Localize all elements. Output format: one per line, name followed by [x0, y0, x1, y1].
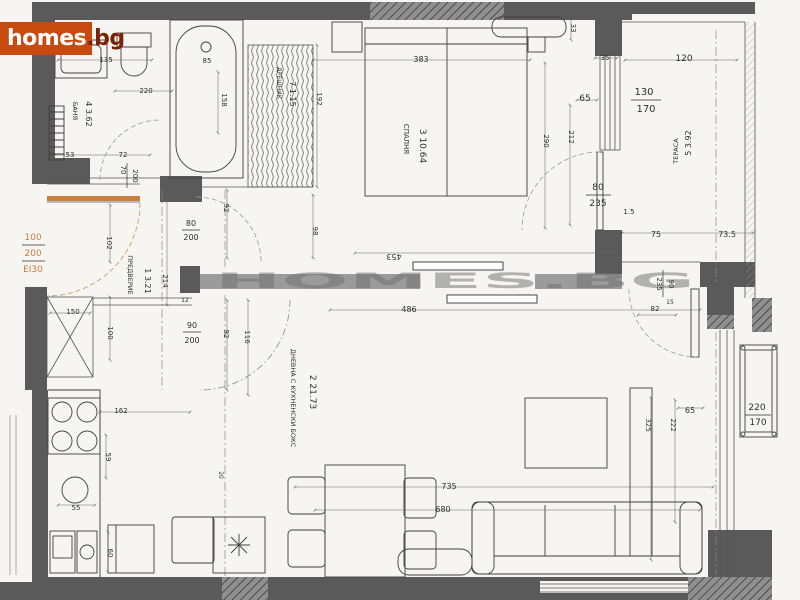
hall-living-door-swing-arc: [200, 300, 290, 390]
wall-left-mid: [25, 287, 47, 390]
room-name-1: ПРЕДВЕРИЕ: [126, 255, 134, 294]
dimension-label: 100: [24, 233, 41, 243]
dining-table: [325, 465, 405, 577]
column-top: [370, 2, 504, 20]
bed: [365, 28, 527, 196]
dimension-label: 80: [592, 183, 604, 193]
armchair: [172, 517, 214, 563]
dimension-label: 486: [401, 305, 416, 314]
wall-kitchen-left: [32, 390, 48, 580]
bath-door-swing-arc: [100, 120, 160, 180]
dimension-label: 220: [139, 87, 152, 95]
dimension-label: 735: [441, 482, 456, 491]
dimension-label: 150: [66, 308, 79, 316]
dimension-label: 59: [104, 453, 112, 462]
dimension-label: 90: [187, 321, 197, 330]
furniture: [48, 17, 777, 577]
dimension-label: 200: [24, 249, 41, 259]
dimension-label: 200: [131, 169, 139, 182]
room-name-3: СПАЛНЯ: [402, 124, 410, 154]
nightstand: [332, 22, 362, 52]
wall-bath-corner: [32, 158, 90, 184]
dining-chair: [288, 477, 325, 514]
dimension-label: 383: [413, 55, 428, 64]
room-name-4: БАНЯ: [71, 102, 79, 120]
dimension-label: 235: [655, 277, 663, 290]
structural-walls: [0, 2, 772, 600]
dimension-label: 98: [311, 227, 319, 236]
room-area-3: 3 10.64: [417, 129, 427, 164]
wall-bottom-left-stub: [0, 582, 32, 600]
dimension-label: 70: [119, 166, 127, 175]
dimension-label: 55: [72, 504, 81, 512]
logo-text-primary: homes: [7, 28, 86, 50]
living-terrace-door-leaf: [691, 289, 699, 357]
light-fixture-box: [213, 517, 265, 573]
dimension-label: 162: [114, 407, 127, 415]
dishwasher: [77, 531, 97, 573]
dimension-label: 135: [99, 56, 112, 64]
dimension-label: 325: [644, 418, 652, 431]
dimension-label: 212: [567, 130, 575, 143]
bathtub: [170, 20, 243, 178]
homes-bg-logo: homes.bg: [0, 22, 92, 55]
stove: [48, 398, 100, 454]
logo-text-suffix: .bg: [86, 28, 124, 50]
room-area-5: 5 3.92: [684, 130, 693, 155]
column-bottom-right: [688, 577, 772, 600]
wall-bottom-right-block: [708, 530, 772, 577]
dimension-label: 65: [685, 406, 695, 415]
dimension-label: 116: [243, 330, 251, 344]
column-right-edge: [752, 298, 772, 332]
sliding-panel-lower: [447, 295, 537, 303]
dimension-label: 82: [651, 305, 660, 313]
dimension-label: 53: [66, 151, 75, 159]
kitchen-counter: [48, 390, 100, 577]
living-terrace-door-arc: [629, 289, 697, 357]
wall-pier-hall: [180, 266, 200, 293]
column-bottom-mid: [222, 577, 268, 600]
window-bottom-opening: [540, 581, 688, 593]
dimension-label: 192: [315, 92, 323, 105]
watermark-text: HOMES.BG: [215, 269, 695, 293]
dimension-label: 200: [184, 336, 199, 345]
dimension-label: 130: [634, 87, 653, 98]
dimension-lines: [50, 18, 753, 572]
room-name-2: ДНЕВНА С КУХНЕНСКИ БОКС: [289, 349, 297, 448]
dimension-label: 20: [217, 471, 224, 479]
dimension-label: ЕI30: [23, 265, 43, 275]
room-area-4: 4 3.62: [84, 101, 93, 126]
dining-chair: [288, 530, 325, 567]
dimension-label: 35: [601, 54, 610, 62]
light-fixture-star: [228, 534, 250, 556]
dimension-label: 92: [222, 330, 230, 339]
dining-chair: [404, 531, 436, 569]
dimension-label: 214: [161, 274, 169, 288]
dimension-label: 12: [181, 297, 189, 304]
column-right-mid: [707, 315, 734, 329]
wall-bedroom-terrace-top: [595, 14, 622, 56]
dimension-label: 65: [579, 94, 590, 104]
dimension-label: 72: [119, 151, 128, 159]
dimension-label: 220: [748, 403, 765, 413]
ottoman: [398, 549, 472, 575]
dimension-label: 235: [589, 199, 606, 209]
room-name-7: ДРЕШНИК: [275, 67, 282, 100]
kitchen-cabinet: [50, 531, 75, 573]
sofa: [472, 502, 702, 574]
bedroom-shelf: [492, 17, 566, 52]
dimension-label: 92: [222, 204, 230, 213]
terrace-railing-hatch: [746, 22, 755, 298]
dimension-label: 90: [667, 280, 675, 289]
bedroom-terrace-door-arc: [522, 152, 600, 230]
room-area-1: 1 3.21: [143, 268, 152, 293]
dimension-label: 290: [542, 134, 550, 147]
dimension-label: 222: [669, 418, 677, 431]
dimension-label: 170: [749, 418, 766, 428]
dining-chair: [404, 478, 436, 518]
dimension-label: 75: [651, 230, 661, 239]
dimension-label: 1.5: [623, 208, 634, 216]
entry-door-threshold: [47, 196, 140, 201]
dimension-label: 100: [106, 326, 114, 339]
dimension-label: 102: [105, 236, 113, 249]
bathtub-drain: [201, 42, 211, 52]
dimension-label: 85: [203, 57, 212, 65]
dimension-label: 680: [435, 505, 450, 514]
room-area-7: 7 1.15: [288, 81, 297, 106]
room-name-5: ТЕРАСА: [672, 138, 680, 165]
floor-plan-canvas: HOMES.BG 1352205372702008515819238333356…: [0, 0, 800, 600]
dimension-label: 73.5: [718, 230, 736, 239]
coffee-table: [525, 398, 607, 468]
room-area-2: 2 21.73: [307, 375, 317, 409]
dimension-label: 158: [220, 93, 228, 106]
wall-bath-pier: [160, 176, 202, 202]
wall-top-terrace: [632, 2, 755, 14]
dimension-label: 60: [106, 549, 114, 558]
dimension-label: 33: [569, 24, 577, 33]
dimension-label: 15: [666, 299, 674, 306]
floorplan-image: HOMES.BG 1352205372702008515819238333356…: [0, 0, 800, 600]
tv-cabinet: [630, 388, 652, 556]
dimension-label: 170: [636, 104, 655, 115]
dimension-label: 453: [386, 252, 401, 261]
dimension-label: 200: [183, 233, 198, 242]
kitchen-sink: [62, 477, 88, 503]
dimension-label: 80: [186, 219, 196, 228]
dimension-label: 120: [675, 54, 692, 64]
